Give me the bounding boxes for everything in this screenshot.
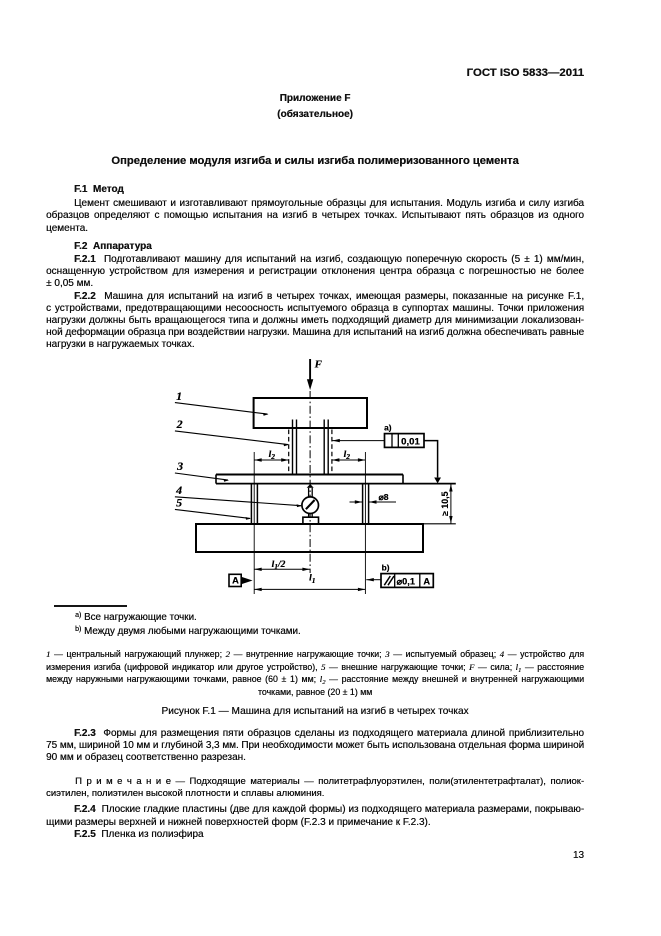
svg-text:a): a) bbox=[384, 423, 392, 433]
svg-text:3: 3 bbox=[176, 459, 183, 473]
svg-text:l2: l2 bbox=[269, 450, 276, 461]
svg-text:l1/2: l1/2 bbox=[272, 560, 286, 571]
svg-text:A: A bbox=[232, 576, 239, 586]
svg-text:≥ 10,5: ≥ 10,5 bbox=[440, 492, 450, 517]
svg-text:0,01: 0,01 bbox=[401, 436, 420, 447]
svg-text:b): b) bbox=[382, 563, 390, 573]
svg-text:l1: l1 bbox=[309, 574, 315, 585]
svg-text:⌀0,1: ⌀0,1 bbox=[397, 577, 415, 587]
svg-text:l2: l2 bbox=[344, 450, 351, 461]
svg-text:1: 1 bbox=[176, 389, 182, 403]
svg-text:F: F bbox=[314, 359, 323, 371]
svg-text:⌀8: ⌀8 bbox=[379, 492, 389, 502]
svg-text:2: 2 bbox=[176, 417, 183, 431]
svg-text:5: 5 bbox=[176, 495, 182, 509]
svg-text:A: A bbox=[423, 577, 430, 587]
